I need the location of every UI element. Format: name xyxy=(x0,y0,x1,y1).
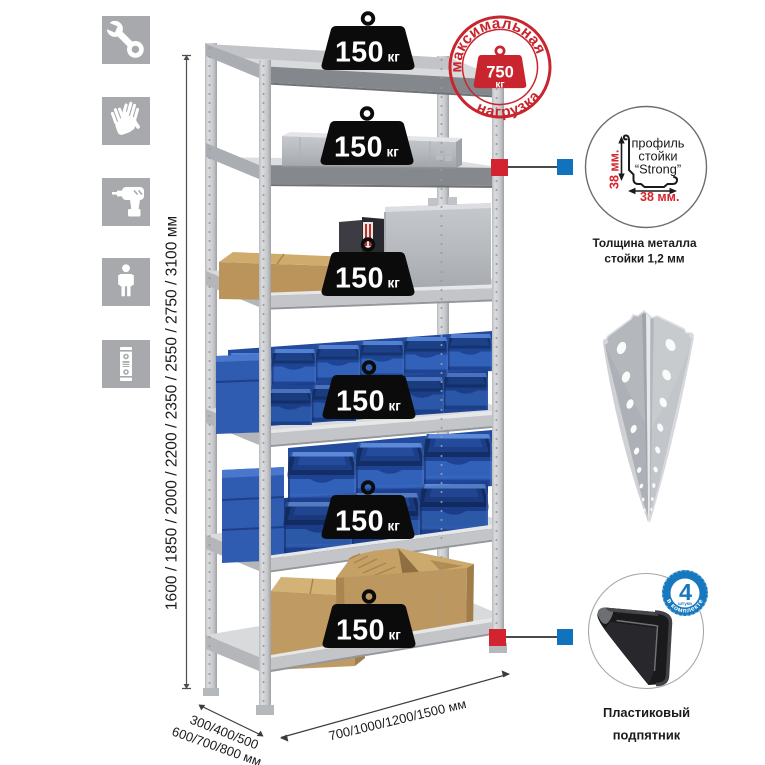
svg-text:38 мм.: 38 мм. xyxy=(640,189,680,204)
svg-text:кг: кг xyxy=(495,80,504,91)
svg-text:подпятник: подпятник xyxy=(613,728,681,743)
svg-text:1600 / 1850 / 2000 / 2200 / 23: 1600 / 1850 / 2000 / 2200 / 2350 / 2550 … xyxy=(164,216,181,610)
svg-text:Толщина металла: Толщина металла xyxy=(592,236,696,250)
svg-text:стойки 1,2 мм: стойки 1,2 мм xyxy=(604,252,684,266)
svg-text:штуки: штуки xyxy=(678,601,692,606)
svg-text:38 мм.: 38 мм. xyxy=(607,150,622,190)
svg-text:“Strong”: “Strong” xyxy=(635,162,681,177)
svg-text:Пластиковый: Пластиковый xyxy=(603,705,690,720)
